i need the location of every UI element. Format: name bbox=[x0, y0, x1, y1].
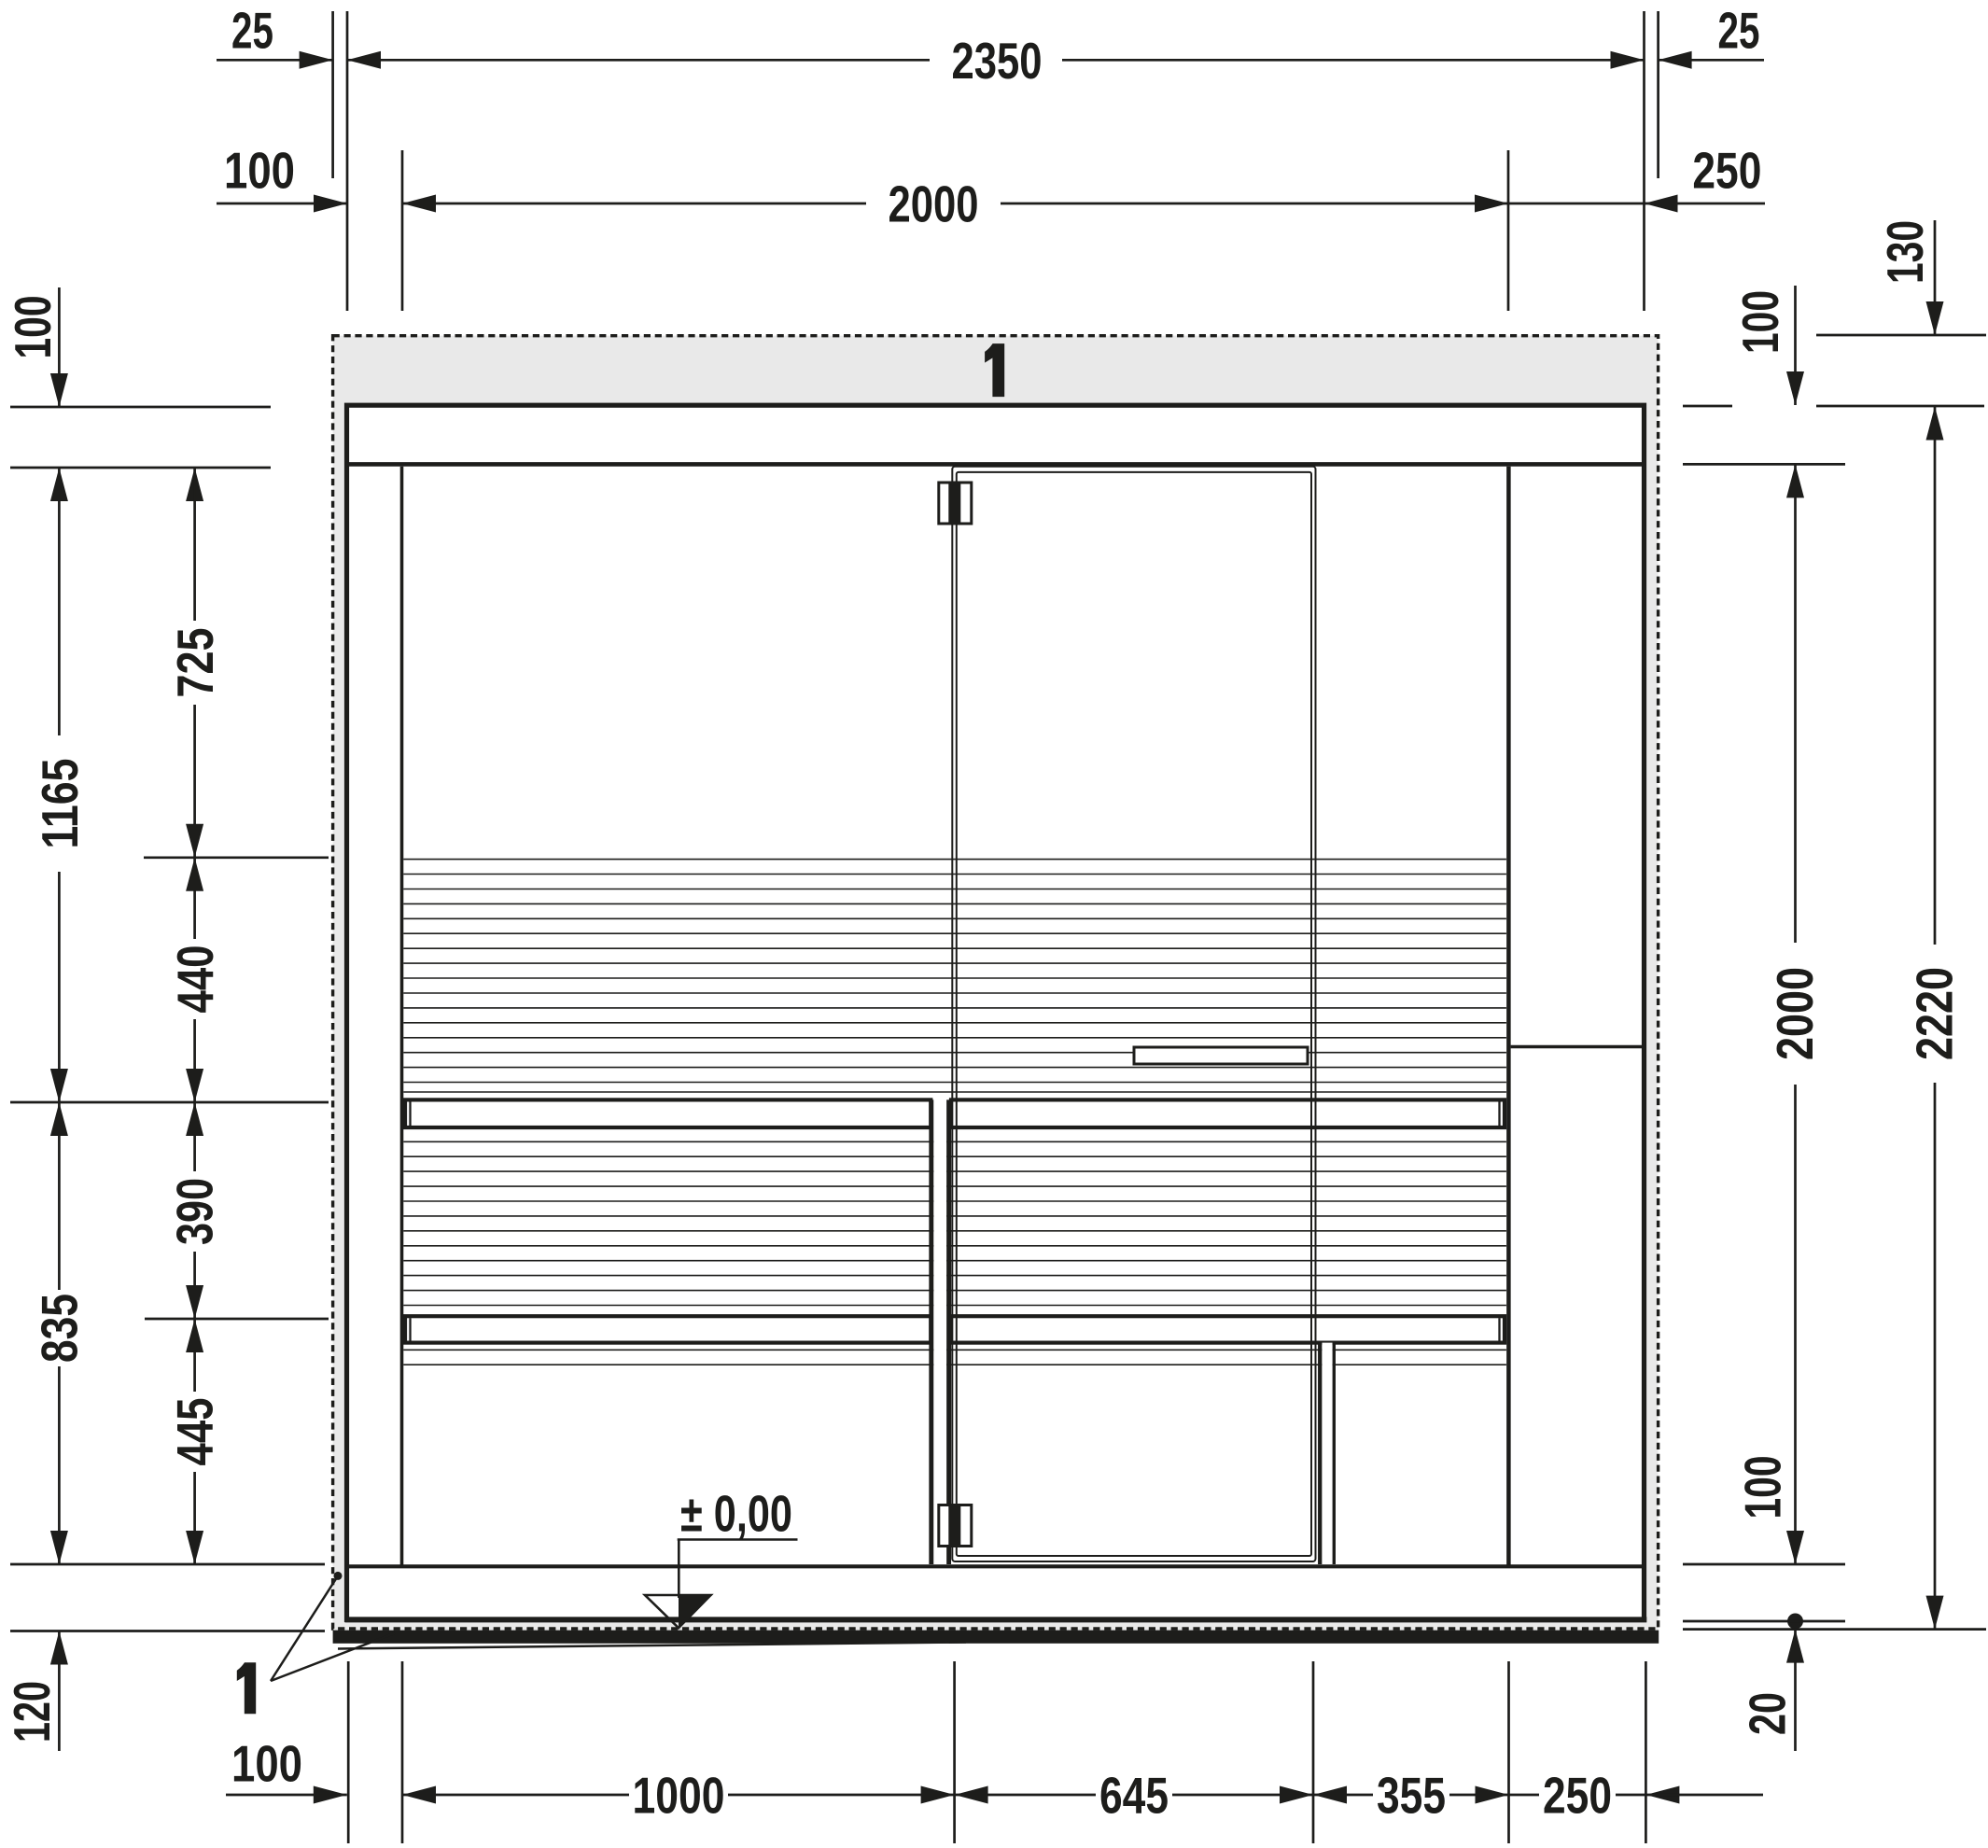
svg-text:250: 250 bbox=[1692, 142, 1761, 200]
svg-text:100: 100 bbox=[224, 142, 295, 200]
svg-text:250: 250 bbox=[1543, 1767, 1612, 1825]
svg-text:390: 390 bbox=[165, 1178, 223, 1245]
svg-text:2220: 2220 bbox=[1906, 967, 1964, 1060]
svg-text:440: 440 bbox=[166, 945, 224, 1014]
svg-text:25: 25 bbox=[1718, 2, 1760, 60]
svg-text:1000: 1000 bbox=[633, 1767, 725, 1825]
svg-text:2350: 2350 bbox=[952, 32, 1043, 90]
svg-text:2000: 2000 bbox=[1766, 967, 1824, 1060]
svg-text:100: 100 bbox=[1734, 1456, 1792, 1519]
svg-text:20: 20 bbox=[1739, 1692, 1797, 1735]
svg-text:100: 100 bbox=[231, 1735, 302, 1793]
svg-text:100: 100 bbox=[4, 296, 62, 359]
svg-text:25: 25 bbox=[231, 2, 273, 60]
svg-text:835: 835 bbox=[30, 1294, 88, 1363]
svg-text:100: 100 bbox=[1731, 290, 1789, 354]
svg-text:725: 725 bbox=[166, 628, 224, 698]
svg-text:130: 130 bbox=[1876, 220, 1934, 284]
svg-text:120: 120 bbox=[3, 1681, 61, 1743]
svg-text:1165: 1165 bbox=[31, 759, 89, 849]
svg-text:445: 445 bbox=[165, 1398, 223, 1466]
svg-text:355: 355 bbox=[1377, 1767, 1446, 1825]
svg-text:± 0,00: ± 0,00 bbox=[680, 1485, 792, 1543]
svg-text:645: 645 bbox=[1099, 1767, 1169, 1825]
svg-text:2000: 2000 bbox=[889, 175, 979, 233]
